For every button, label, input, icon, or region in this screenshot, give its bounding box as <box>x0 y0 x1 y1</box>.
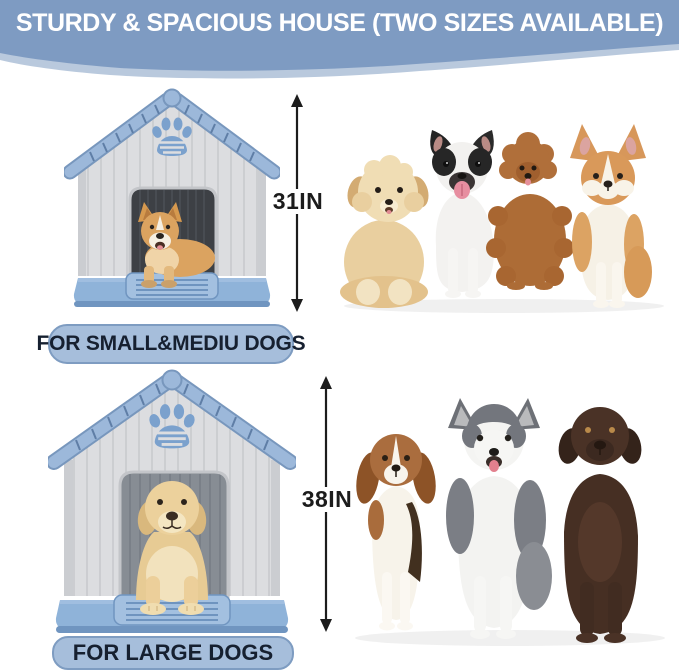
beagle <box>353 434 440 631</box>
chocolate-labrador <box>555 407 644 643</box>
height-value-large: 38IN <box>297 487 357 512</box>
size-label-large: FOR LARGE DOGS <box>52 636 294 670</box>
small-dogs-photo <box>336 116 672 314</box>
banner-title: STURDY & SPACIOUS HOUSE (TWO SIZES AVAIL… <box>0 9 679 38</box>
large-dog-house-illustration <box>48 368 296 636</box>
product-infographic: STURDY & SPACIOUS HOUSE (TWO SIZES AVAIL… <box>0 0 679 672</box>
havanese-puppy <box>340 155 432 308</box>
large-dogs-photo <box>350 388 672 648</box>
size-label-small: FOR SMALL&MEDIU DOGS <box>48 324 294 364</box>
small-dog-house-illustration <box>64 88 280 312</box>
toy-poodle <box>486 132 574 290</box>
french-bulldog <box>430 130 494 298</box>
labrador-in-doorway <box>136 481 209 615</box>
height-value-small: 31IN <box>269 189 327 214</box>
siberian-husky <box>446 398 552 639</box>
welsh-corgi <box>570 124 652 308</box>
